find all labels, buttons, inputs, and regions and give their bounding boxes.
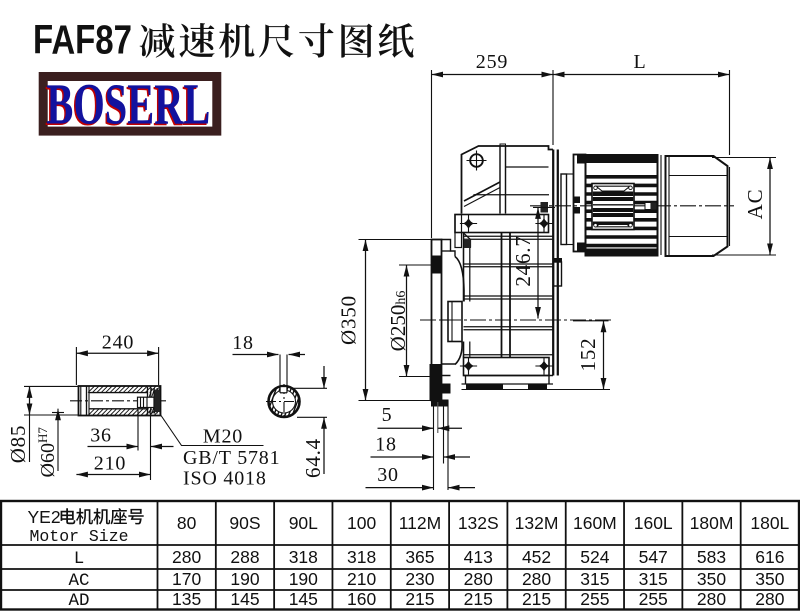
svg-text:315: 315 [580, 569, 609, 589]
svg-text:132M: 132M [515, 513, 559, 533]
svg-text:160M: 160M [573, 513, 617, 533]
svg-text:350: 350 [755, 569, 784, 589]
svg-text:246.7: 246.7 [511, 235, 535, 286]
svg-text:583: 583 [697, 547, 726, 567]
svg-text:190: 190 [289, 569, 318, 589]
svg-text:90L: 90L [289, 513, 318, 533]
svg-text:616: 616 [755, 547, 784, 567]
svg-text:L: L [633, 51, 646, 73]
svg-text:112M: 112M [399, 513, 441, 533]
svg-text:350: 350 [697, 569, 726, 589]
svg-text:Motor Size: Motor Size [29, 527, 128, 546]
svg-text:210: 210 [347, 569, 376, 589]
svg-text:315: 315 [639, 569, 668, 589]
svg-text:318: 318 [289, 547, 318, 567]
svg-text:152: 152 [576, 338, 600, 372]
svg-text:80: 80 [177, 513, 197, 533]
svg-text:280: 280 [522, 569, 551, 589]
svg-text:90S: 90S [229, 513, 260, 533]
svg-text:452: 452 [522, 547, 551, 567]
svg-text:AC: AC [743, 189, 767, 220]
svg-text:180L: 180L [750, 513, 789, 533]
svg-text:145: 145 [230, 589, 259, 609]
svg-text:255: 255 [639, 589, 668, 609]
svg-text:M20: M20 [203, 426, 243, 448]
svg-text:30: 30 [377, 464, 399, 486]
svg-text:145: 145 [289, 589, 318, 609]
svg-text:547: 547 [639, 547, 668, 567]
svg-text:FAF87: FAF87 [33, 17, 132, 63]
svg-text:135: 135 [172, 589, 201, 609]
svg-text:318: 318 [347, 547, 376, 567]
svg-text:132S: 132S [458, 513, 499, 533]
svg-text:280: 280 [464, 569, 493, 589]
svg-text:Ø60H7: Ø60H7 [35, 427, 59, 478]
svg-text:190: 190 [230, 569, 259, 589]
svg-text:170: 170 [172, 569, 201, 589]
svg-text:18: 18 [232, 332, 254, 354]
svg-text:160L: 160L [634, 513, 673, 533]
svg-text:280: 280 [755, 589, 784, 609]
svg-text:YE2: YE2 [28, 507, 61, 527]
svg-text:210: 210 [94, 453, 126, 475]
svg-text:64.4: 64.4 [301, 438, 325, 478]
svg-text:160: 160 [347, 589, 376, 609]
svg-text:5: 5 [382, 404, 393, 426]
svg-text:255: 255 [580, 589, 609, 609]
svg-text:AD: AD [68, 591, 89, 611]
svg-text:230: 230 [405, 569, 434, 589]
svg-text:36: 36 [90, 425, 112, 447]
svg-text:100: 100 [347, 513, 376, 533]
svg-text:Ø350: Ø350 [337, 295, 361, 345]
svg-text:365: 365 [405, 547, 434, 567]
svg-text:259: 259 [476, 51, 508, 73]
svg-text:280: 280 [172, 547, 201, 567]
svg-text:180M: 180M [690, 513, 734, 533]
svg-text:524: 524 [580, 547, 609, 567]
svg-text:413: 413 [464, 547, 493, 567]
svg-text:BOSERL: BOSERL [46, 72, 210, 137]
svg-text:215: 215 [522, 589, 551, 609]
svg-text:215: 215 [464, 589, 493, 609]
svg-text:18: 18 [375, 434, 397, 456]
svg-text:288: 288 [230, 547, 259, 567]
svg-text:280: 280 [697, 589, 726, 609]
svg-text:240: 240 [102, 332, 134, 354]
svg-text:GB/T 5781: GB/T 5781 [183, 447, 280, 469]
svg-text:215: 215 [405, 589, 434, 609]
svg-text:AC: AC [68, 571, 89, 591]
svg-text:Ø85: Ø85 [6, 425, 30, 464]
svg-text:ISO 4018: ISO 4018 [183, 468, 267, 490]
svg-text:Ø250h6: Ø250h6 [386, 291, 410, 352]
svg-text:L: L [74, 549, 85, 569]
